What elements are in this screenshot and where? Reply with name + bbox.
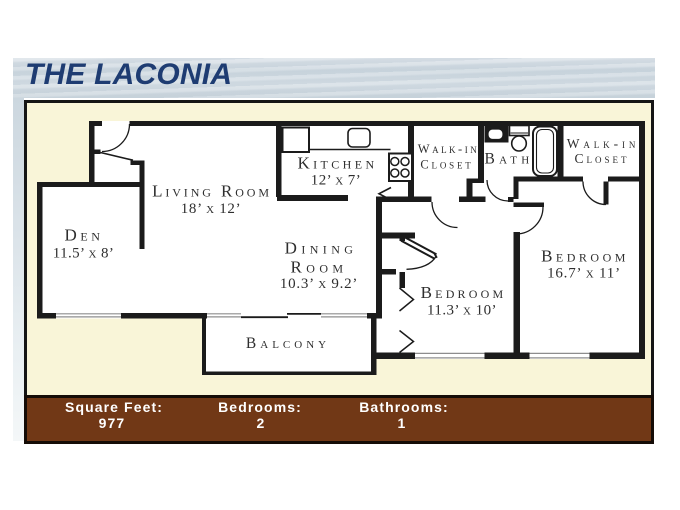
svg-text:Balcony: Balcony	[246, 335, 330, 352]
svg-text:Dining: Dining	[285, 239, 358, 258]
svg-text:Closet: Closet	[420, 158, 473, 172]
svg-text:11.5’ x 8’: 11.5’ x 8’	[53, 246, 115, 262]
svg-text:Walk-in: Walk-in	[418, 142, 479, 156]
svg-text:Kitchen: Kitchen	[297, 154, 377, 173]
svg-text:16.7’ x 11’: 16.7’ x 11’	[547, 266, 621, 282]
svg-text:Bedroom: Bedroom	[421, 283, 507, 302]
svg-text:Walk-in: Walk-in	[567, 136, 640, 151]
svg-text:Room: Room	[291, 258, 348, 277]
svg-text:Bedroom: Bedroom	[541, 247, 629, 266]
svg-text:Bath: Bath	[485, 151, 534, 168]
svg-text:11.3’ x 10’: 11.3’ x 10’	[427, 303, 497, 319]
svg-text:Closet: Closet	[574, 151, 629, 166]
svg-text:10.3’ x 9.2’: 10.3’ x 9.2’	[280, 276, 358, 292]
svg-text:18’ x 12’: 18’ x 12’	[181, 201, 242, 217]
svg-text:Living Room: Living Room	[152, 182, 272, 201]
svg-text:12’ x 7’: 12’ x 7’	[311, 173, 361, 189]
svg-text:Den: Den	[64, 226, 103, 245]
